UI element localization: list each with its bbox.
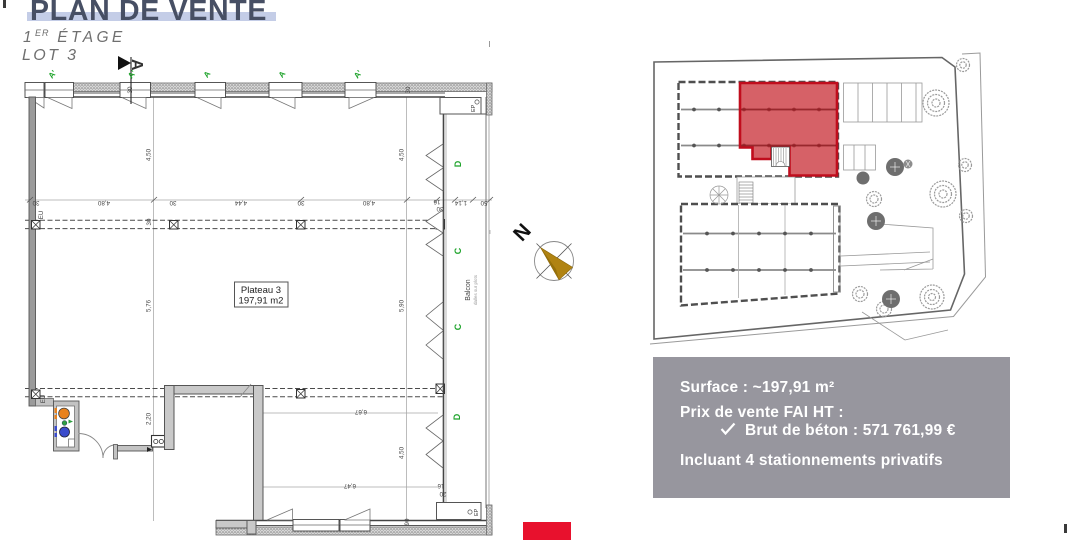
svg-text:EU: EU (38, 211, 45, 220)
svg-text:5,76: 5,76 (146, 299, 153, 312)
svg-text:A': A' (47, 69, 59, 81)
svg-text:4,50: 4,50 (399, 446, 406, 459)
svg-text:30: 30 (169, 199, 176, 206)
svg-text:6,47: 6,47 (343, 482, 356, 489)
svg-text:6,67: 6,67 (354, 408, 367, 415)
svg-text:EP: EP (471, 104, 477, 112)
svg-text:90: 90 (404, 518, 411, 525)
svg-text:16: 16 (433, 198, 440, 205)
svg-text:4,44: 4,44 (234, 199, 247, 206)
svg-text:197,91 m2: 197,91 m2 (239, 296, 284, 307)
svg-text:50: 50 (480, 199, 487, 206)
svg-text:30: 30 (32, 199, 39, 206)
svg-text:D: D (453, 160, 463, 167)
svg-text:30: 30 (127, 86, 134, 93)
svg-text:A': A' (352, 69, 364, 81)
svg-text:2,20: 2,20 (146, 412, 153, 425)
svg-text:dalles sur plots: dalles sur plots (473, 274, 478, 305)
svg-text:30: 30 (146, 218, 153, 225)
svg-text:16: 16 (437, 482, 444, 489)
svg-text:30: 30 (405, 86, 412, 93)
svg-text:1,14: 1,14 (454, 199, 467, 206)
svg-text:C: C (453, 247, 463, 254)
svg-text:30: 30 (436, 205, 443, 212)
svg-text:EP: EP (474, 508, 480, 516)
svg-text:4,80: 4,80 (362, 199, 375, 206)
svg-text:C: C (453, 323, 463, 330)
svg-text:5,90: 5,90 (399, 299, 406, 312)
svg-text:4,50: 4,50 (146, 148, 153, 161)
svg-text:A: A (202, 69, 213, 79)
svg-text:4,50: 4,50 (399, 148, 406, 161)
svg-text:Balcon: Balcon (465, 279, 472, 301)
svg-text:4,80: 4,80 (97, 199, 110, 206)
svg-text:A: A (277, 69, 288, 79)
svg-text:N: N (509, 219, 536, 246)
svg-text:EU: EU (40, 395, 47, 404)
svg-text:Plateau 3: Plateau 3 (241, 285, 281, 296)
svg-text:20: 20 (439, 490, 446, 497)
svg-text:D: D (452, 413, 462, 420)
